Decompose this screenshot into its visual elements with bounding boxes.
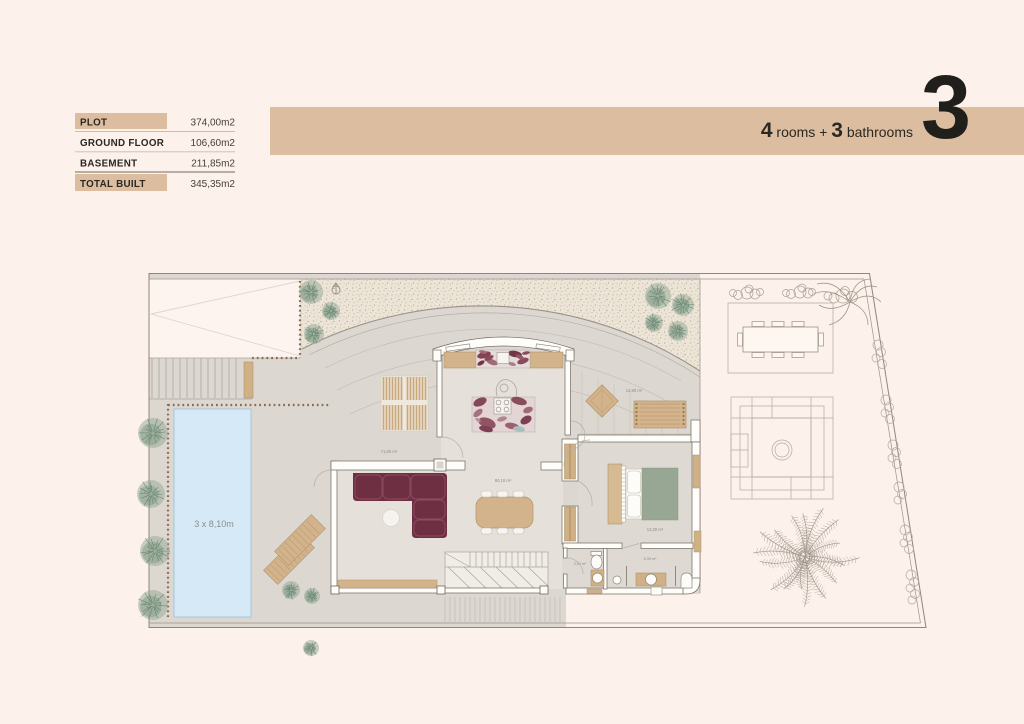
svg-text:3 x 8,10m: 3 x 8,10m bbox=[194, 519, 234, 529]
svg-text:14,80 m²: 14,80 m² bbox=[626, 388, 643, 393]
svg-text:5,30 m²: 5,30 m² bbox=[644, 557, 658, 561]
svg-text:13,30 m²: 13,30 m² bbox=[647, 527, 664, 532]
svg-text:3: 3 bbox=[921, 58, 971, 158]
svg-text:BASEMENT: BASEMENT bbox=[80, 159, 137, 170]
svg-text:345,35m2: 345,35m2 bbox=[191, 179, 236, 190]
svg-text:374,00m2: 374,00m2 bbox=[191, 118, 236, 129]
svg-text:71,50 m²: 71,50 m² bbox=[381, 449, 398, 454]
svg-text:211,85m2: 211,85m2 bbox=[191, 159, 235, 170]
svg-text:60,10 m²: 60,10 m² bbox=[495, 478, 512, 483]
svg-text:TOTAL BUILT: TOTAL BUILT bbox=[80, 179, 146, 190]
svg-text:106,60m2: 106,60m2 bbox=[191, 138, 236, 149]
svg-text:GROUND FLOOR: GROUND FLOOR bbox=[80, 138, 164, 149]
svg-text:PLOT: PLOT bbox=[80, 118, 107, 129]
